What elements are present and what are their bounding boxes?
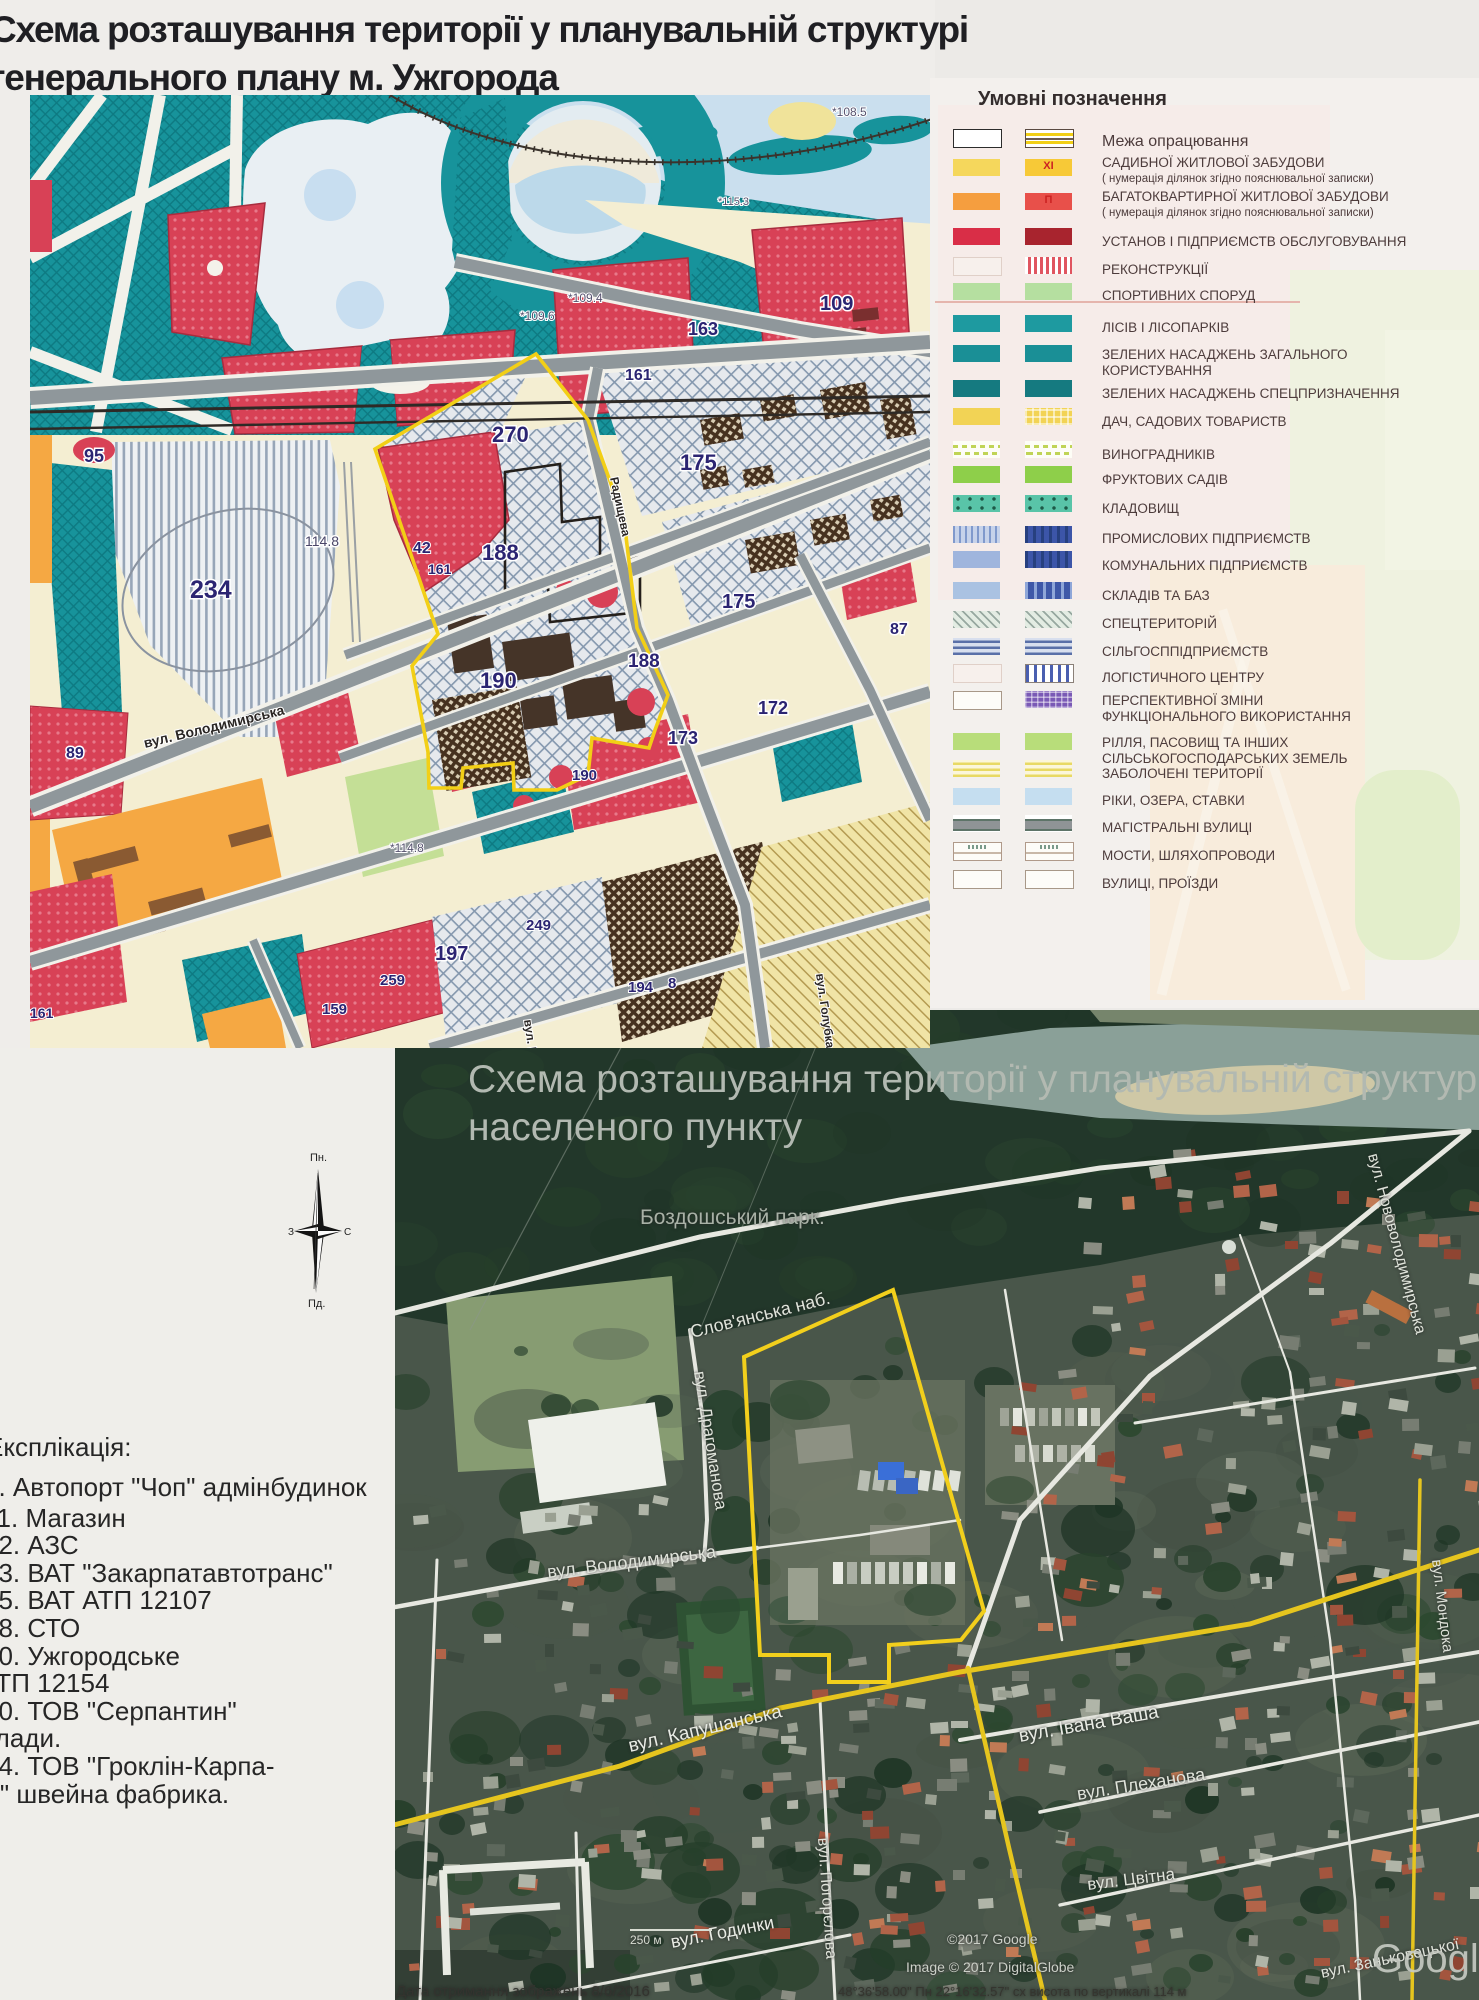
- svg-text:*108.5: *108.5: [832, 105, 867, 119]
- svg-text:8: 8: [668, 975, 676, 992]
- svg-text:48°36'58.00" Пн 22°16'32.57": 48°36'58.00" Пн 22°16'32.57" сх висота п…: [838, 1984, 1187, 1999]
- svg-text:161: 161: [30, 1005, 54, 1021]
- svg-text:87: 87: [890, 621, 908, 638]
- svg-text:Боздошський парк.: Боздошський парк.: [640, 1206, 825, 1229]
- svg-text:Image © 2017 DigitalGlobe: Image © 2017 DigitalGlobe: [906, 1959, 1075, 1975]
- svg-text:З: З: [288, 1227, 294, 1238]
- svg-text:188: 188: [628, 651, 660, 672]
- svg-text:Google: Google: [1372, 1937, 1479, 1981]
- svg-text:Схема розташування території у: Схема розташування території у плануваль…: [468, 1058, 1479, 1101]
- svg-text:188: 188: [482, 540, 519, 565]
- svg-text:42: 42: [413, 540, 431, 557]
- svg-text:©2017 Google: ©2017 Google: [947, 1931, 1038, 1947]
- svg-text:109: 109: [820, 293, 853, 315]
- svg-text:234: 234: [190, 576, 232, 604]
- svg-text:Пд.: Пд.: [308, 1298, 325, 1310]
- svg-text:175: 175: [680, 450, 717, 475]
- svg-text:населеного пункту: населеного пункту: [468, 1106, 803, 1149]
- svg-text:270: 270: [492, 422, 529, 447]
- svg-text:*109.4: *109.4: [568, 291, 603, 305]
- svg-text:194: 194: [628, 979, 654, 996]
- svg-text:259: 259: [380, 972, 405, 989]
- svg-text:Дата отримання зображень 8/6/2: Дата отримання зображень 8/6/2016: [396, 1983, 650, 2000]
- svg-text:190: 190: [480, 668, 517, 693]
- svg-text:*114.8: *114.8: [390, 841, 424, 855]
- svg-text:173: 173: [668, 728, 698, 748]
- svg-text:*115.3: *115.3: [718, 196, 749, 208]
- svg-text:159: 159: [322, 1001, 347, 1018]
- svg-text:250 м: 250 м: [630, 1933, 662, 1947]
- svg-text:249: 249: [526, 917, 551, 934]
- svg-text:172: 172: [758, 698, 788, 718]
- svg-text:190: 190: [572, 767, 597, 784]
- svg-text:175: 175: [722, 591, 755, 613]
- svg-text:197: 197: [435, 943, 468, 965]
- svg-text:161: 161: [428, 561, 452, 577]
- svg-text:95: 95: [84, 446, 104, 466]
- svg-text:163: 163: [688, 319, 718, 339]
- svg-text:С: С: [344, 1227, 351, 1238]
- svg-text:114.8: 114.8: [305, 533, 339, 549]
- svg-text:89: 89: [66, 745, 84, 762]
- svg-text:161: 161: [625, 367, 652, 384]
- svg-text:Пн.: Пн.: [310, 1152, 327, 1164]
- svg-text:*109.6: *109.6: [520, 309, 555, 323]
